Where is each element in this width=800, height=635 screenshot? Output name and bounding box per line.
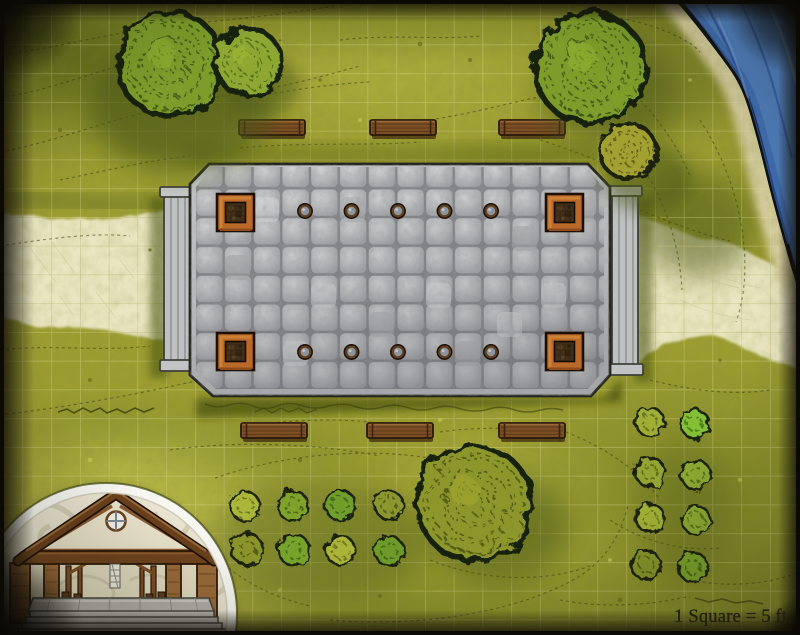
- svg-text:1 Square = 5 ft.: 1 Square = 5 ft.: [674, 607, 792, 627]
